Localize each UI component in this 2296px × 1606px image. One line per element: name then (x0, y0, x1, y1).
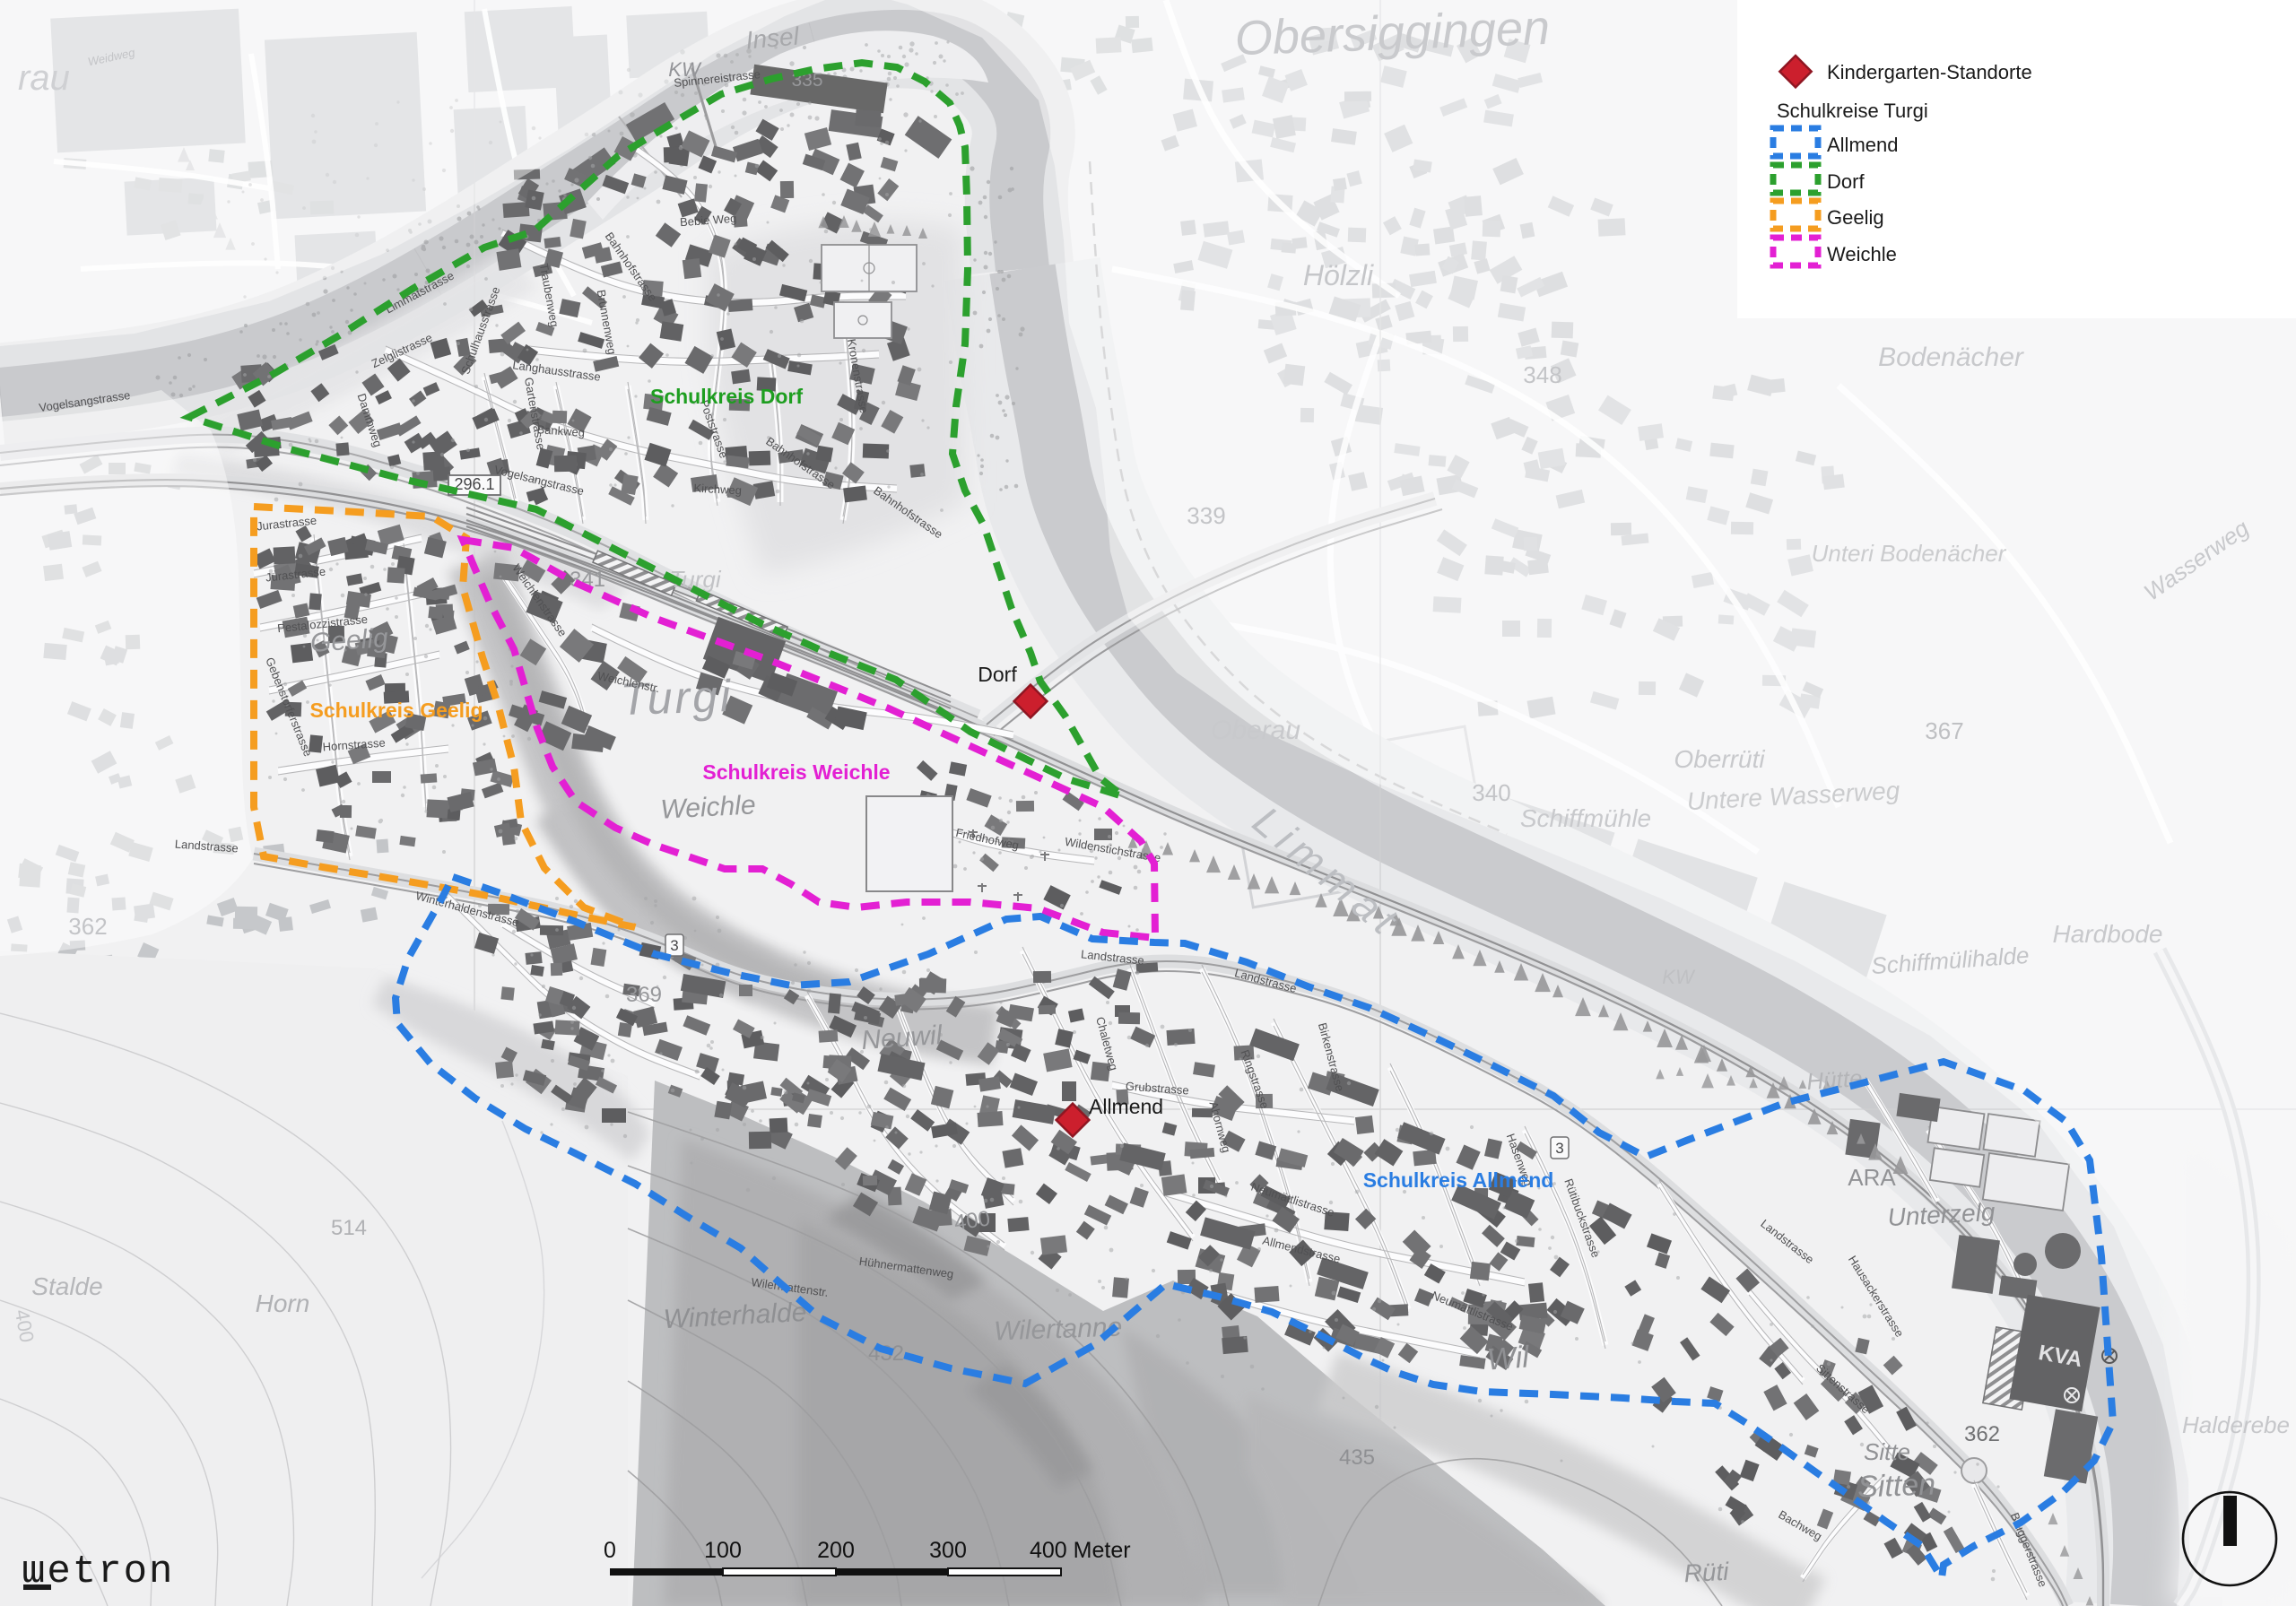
svg-text:Dorf: Dorf (978, 663, 1017, 686)
svg-text:435: 435 (1339, 1445, 1375, 1470)
svg-text:100: 100 (704, 1538, 742, 1563)
svg-text:Oberrüti: Oberrüti (1674, 745, 1765, 773)
svg-text:Wilertanne: Wilertanne (994, 1313, 1123, 1347)
svg-text:0: 0 (604, 1538, 616, 1563)
svg-text:400 Meter: 400 Meter (1030, 1538, 1131, 1563)
svg-text:Schulkreis Dorf: Schulkreis Dorf (650, 385, 803, 408)
svg-text:Wil: Wil (1486, 1340, 1532, 1376)
svg-text:362: 362 (1964, 1422, 2000, 1446)
svg-text:348: 348 (1523, 361, 1561, 388)
svg-text:Hardbode: Hardbode (2053, 920, 2163, 948)
svg-text:340: 340 (1472, 779, 1510, 806)
svg-text:Insel: Insel (744, 22, 800, 54)
svg-text:339: 339 (1187, 502, 1225, 529)
svg-text:Schulkreis Allmend: Schulkreis Allmend (1363, 1168, 1554, 1192)
svg-text:Horn: Horn (256, 1289, 310, 1317)
svg-text:200: 200 (817, 1538, 855, 1563)
svg-text:Sitten: Sitten (1857, 1468, 1936, 1505)
svg-text:Kirchweg: Kirchweg (693, 482, 742, 498)
svg-text:Rüti: Rüti (1683, 1558, 1730, 1588)
svg-text:300: 300 (929, 1538, 967, 1563)
svg-text:Bodenächer: Bodenächer (1878, 343, 2024, 372)
svg-text:3: 3 (1555, 1140, 1563, 1157)
svg-text:362: 362 (68, 913, 107, 940)
svg-text:Oberau: Oberau (1211, 716, 1300, 745)
svg-text:Dorf: Dorf (1827, 170, 1865, 193)
svg-text:Unteri Bodenächer: Unteri Bodenächer (1812, 540, 2007, 567)
svg-text:3: 3 (670, 937, 678, 954)
svg-text:Schulkreise Turgi: Schulkreise Turgi (1777, 100, 1928, 122)
svg-text:400: 400 (952, 1206, 991, 1235)
svg-text:Geelig: Geelig (1827, 206, 1884, 229)
svg-text:Obersiggingen: Obersiggingen (1234, 1, 1551, 65)
svg-text:ARA: ARA (1848, 1164, 1896, 1191)
svg-text:367: 367 (1925, 717, 1963, 744)
svg-text:Schiffmühle: Schiffmühle (1520, 804, 1651, 832)
svg-text:514: 514 (331, 1216, 367, 1240)
svg-text:Schulkreis Weichle: Schulkreis Weichle (702, 760, 890, 784)
svg-text:Unterzelg: Unterzelg (1887, 1198, 1996, 1231)
svg-text:369: 369 (626, 983, 662, 1007)
svg-text:Stalde: Stalde (31, 1272, 102, 1300)
svg-text:KW: KW (1662, 966, 1696, 988)
svg-text:Kindergarten-Standorte: Kindergarten-Standorte (1827, 61, 2032, 83)
svg-text:Weichle: Weichle (1827, 243, 1897, 265)
svg-text:Hölzli: Hölzli (1303, 259, 1374, 291)
svg-text:rau: rau (18, 58, 70, 98)
svg-text:Schulkreis Geelig: Schulkreis Geelig (309, 699, 483, 722)
svg-text:Sitte: Sitte (1864, 1438, 1910, 1465)
svg-text:Weichle: Weichle (660, 790, 757, 825)
svg-text:296.1: 296.1 (454, 475, 494, 493)
svg-text:Halderebe: Halderebe (2182, 1411, 2290, 1438)
svg-text:Allmend: Allmend (1827, 134, 1898, 156)
svg-text:Allmend: Allmend (1089, 1095, 1163, 1118)
svg-text:Neuwil: Neuwil (860, 1020, 944, 1055)
